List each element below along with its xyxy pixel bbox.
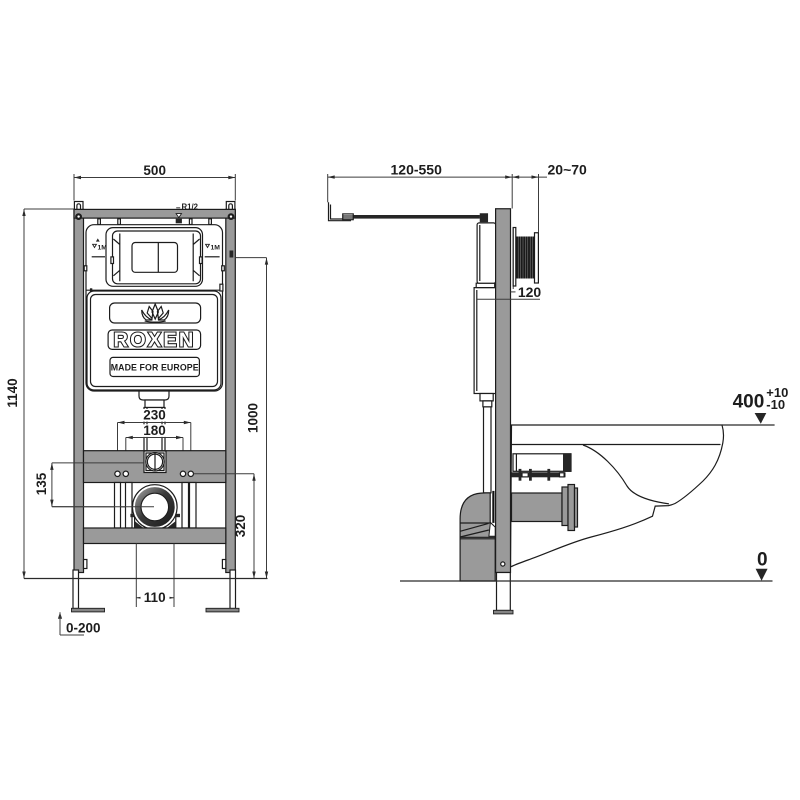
svg-text:1000: 1000 (246, 403, 261, 433)
svg-text:1140: 1140 (5, 378, 20, 407)
svg-text:0: 0 (757, 550, 768, 571)
svg-text:110: 110 (144, 590, 166, 605)
svg-text:20~70: 20~70 (548, 162, 588, 178)
svg-text:1M: 1M (98, 244, 108, 251)
svg-text:180: 180 (143, 423, 166, 438)
svg-text:400: 400 (733, 392, 765, 413)
svg-text:135: 135 (34, 472, 49, 495)
svg-text:1M: 1M (211, 244, 221, 251)
svg-text:500: 500 (143, 163, 166, 178)
svg-text:R1/2: R1/2 (182, 203, 199, 212)
svg-text:-10: -10 (766, 397, 785, 412)
svg-text:0-200: 0-200 (66, 620, 101, 635)
svg-text:120: 120 (518, 284, 542, 300)
svg-text:MADE FOR EUROPE: MADE FOR EUROPE (111, 363, 199, 373)
svg-text:230: 230 (143, 408, 166, 423)
svg-text:ROXEN: ROXEN (113, 330, 195, 352)
svg-text:120-550: 120-550 (391, 162, 443, 178)
svg-text:320: 320 (233, 515, 248, 538)
